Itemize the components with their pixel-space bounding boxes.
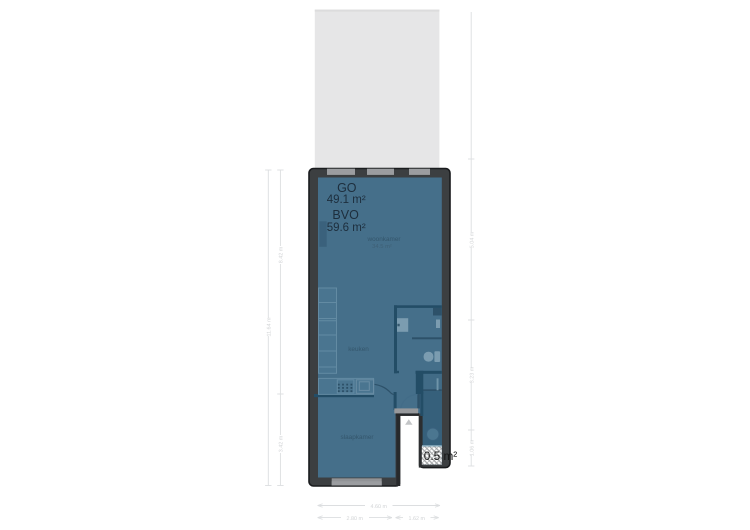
svg-text:8.42 m: 8.42 m	[279, 246, 285, 263]
svg-text:11.64 m: 11.64 m	[267, 317, 273, 337]
svg-text:5.04 m: 5.04 m	[470, 231, 476, 248]
svg-text:1.62 m: 1.62 m	[409, 516, 426, 522]
svg-text:1.06 m: 1.06 m	[470, 439, 476, 456]
svg-text:3.42 m: 3.42 m	[279, 435, 285, 452]
svg-text:3.23 m: 3.23 m	[470, 366, 476, 383]
svg-text:4.60 m: 4.60 m	[371, 504, 388, 510]
svg-text:2.80 m: 2.80 m	[347, 516, 364, 522]
